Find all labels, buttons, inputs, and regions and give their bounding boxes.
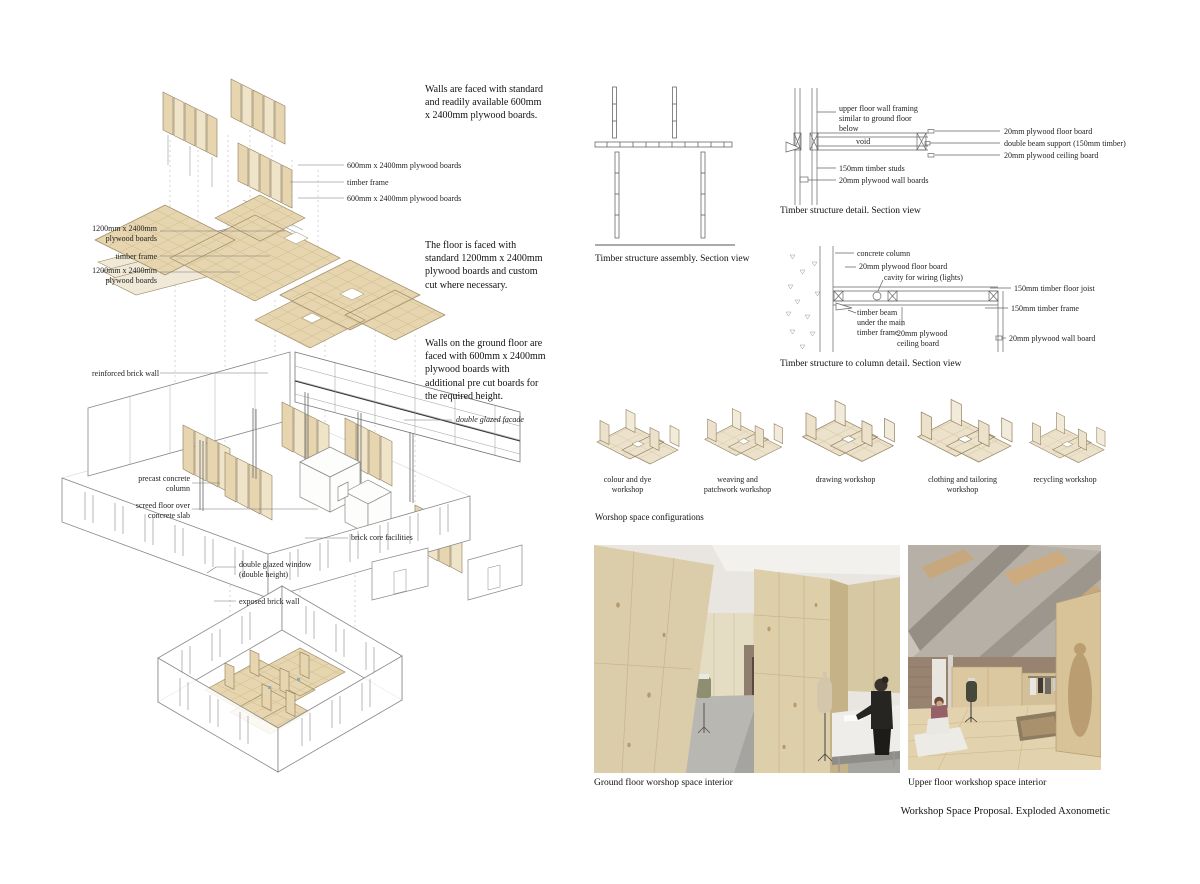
workshop-configurations bbox=[597, 399, 1105, 464]
label-col-ceiling-board: 20mm plywood ceiling board bbox=[897, 329, 967, 349]
label-boards600-top: 600mm x 2400mm plywood boards bbox=[347, 161, 461, 171]
presentation-board: Walls are faced with standard and readil… bbox=[0, 0, 1200, 884]
label-timber-floor-joist: 150mm timber floor joist bbox=[1014, 284, 1095, 294]
label-col-floor-board: 20mm plywood floor board bbox=[859, 262, 947, 272]
label-cavity-wiring: cavity for wiring (lights) bbox=[884, 273, 963, 283]
note-ground-walls: Walls on the ground floor are faced with… bbox=[425, 337, 555, 403]
label-plywood-ceiling-board: 20mm plywood ceiling board bbox=[1004, 151, 1098, 161]
label-boards600-bottom: 600mm x 2400mm plywood boards bbox=[347, 194, 461, 204]
note-floor: The floor is faced with standard 1200mm … bbox=[425, 239, 551, 292]
caption-ground-render: Ground floor worshop space interior bbox=[594, 778, 733, 788]
label-brick-core-facilities: brick core facilities bbox=[351, 533, 413, 543]
label-col-wall-board: 20mm plywood wall board bbox=[1009, 334, 1095, 344]
label-timber-frame-mid: timber frame bbox=[85, 252, 157, 262]
ground-floor-render-photo bbox=[594, 545, 900, 773]
label-plywood-floor-board: 20mm plywood floor board bbox=[1004, 127, 1092, 137]
caption-configurations: Worshop space configurations bbox=[595, 512, 704, 522]
assembled-building-axon bbox=[158, 586, 402, 772]
label-plywood-wall-boards: 20mm plywood wall boards bbox=[839, 176, 929, 186]
label-concrete-column: concrete column bbox=[857, 249, 910, 259]
label-void: void bbox=[856, 137, 870, 147]
caption-detail-section: Timber structure detail. Section view bbox=[780, 206, 921, 216]
label-timber-frame-150: 150mm timber frame bbox=[1011, 304, 1079, 314]
caption-column-detail: Timber structure to column detail. Secti… bbox=[780, 359, 961, 369]
board-title: Workshop Space Proposal. Exploded Axonom… bbox=[700, 806, 1110, 817]
note-walls: Walls are faced with standard and readil… bbox=[425, 83, 545, 123]
caption-upper-render: Upper floor workshop space interior bbox=[908, 778, 1046, 788]
label-timber-studs: 150mm timber studs bbox=[839, 164, 905, 174]
config-label-weaving: weaving and patchwork workshop bbox=[695, 475, 780, 495]
caption-assembly-section: Timber structure assembly. Section view bbox=[595, 254, 749, 264]
timber-assembly-section bbox=[595, 87, 735, 245]
upper-floor-render-photo bbox=[908, 545, 1101, 770]
config-label-drawing: drawing workshop bbox=[798, 475, 893, 485]
config-label-colour-dye: colour and dye workshop bbox=[585, 475, 670, 495]
label-double-glazed-window: double glazed window (double height) bbox=[239, 560, 311, 580]
label-upper-floor-framing: upper floor wall framing similar to grou… bbox=[839, 104, 939, 134]
label-timber-frame-top: timber frame bbox=[347, 178, 389, 188]
label-boards1200-bottom: 1200mm x 2400mm plywood boards bbox=[85, 266, 157, 286]
config-label-recycling: recycling workshop bbox=[1020, 475, 1110, 485]
label-screed-floor: screed floor over concrete slab bbox=[100, 501, 190, 521]
label-precast-concrete-column: precast concrete column bbox=[118, 474, 190, 494]
label-double-beam-support: double beam support (150mm timber) bbox=[1004, 139, 1126, 149]
label-reinforced-brick-wall: reinforced brick wall bbox=[92, 369, 159, 379]
config-label-clothing: clothing and tailoring workshop bbox=[915, 475, 1010, 495]
label-exposed-brick-wall: exposed brick wall bbox=[239, 597, 299, 607]
label-boards1200-top: 1200mm x 2400mm plywood boards bbox=[85, 224, 157, 244]
label-double-glazed-facade: double glazed facade bbox=[456, 415, 524, 425]
